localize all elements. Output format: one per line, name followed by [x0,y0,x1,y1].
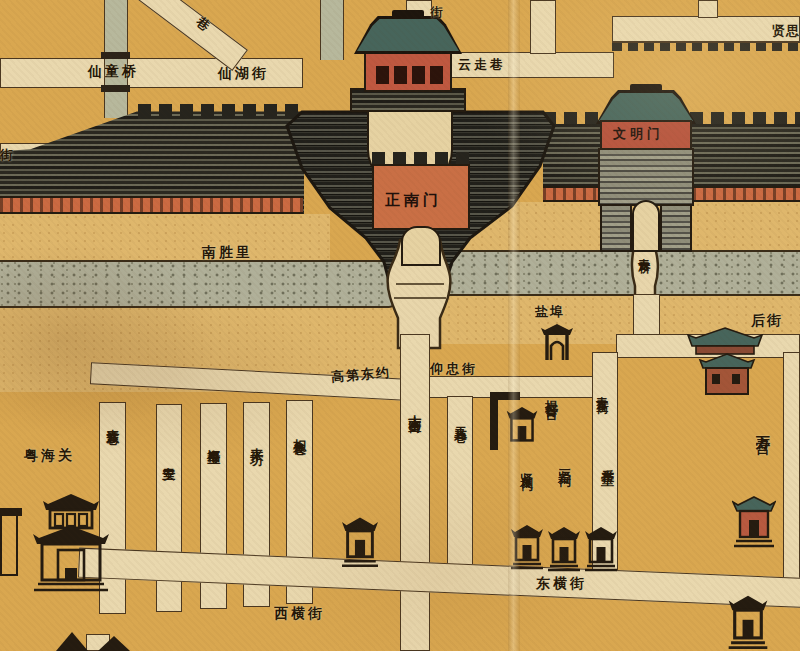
label-fushou-li: 福寿里 [206,438,220,444]
customs-annex-roof [0,508,22,516]
tower-window [430,66,443,84]
label-qingyun-zhijie: 青云直街 [595,386,608,394]
customs-house-building [28,492,114,594]
rooftops-bottom-left [54,626,134,651]
street-danan-zhijie [400,334,430,651]
label-tianma-lane: 天马巷 [453,416,467,422]
wenming-arch [632,200,660,252]
city-wall-left-base [0,196,303,214]
street-tianma-lane [447,396,473,590]
label-subo-lane: 素波巷 [105,418,119,424]
shrine-xianliang [510,522,544,570]
label-wanshou-gong: 万寿宫 [755,424,770,430]
parapet-dashed-line [612,42,800,51]
label-qingyun-bridge: 青云桥 [637,248,650,254]
label-danan-street: 大南直街 [407,404,421,412]
label-tidu-xingtai: 提督行台 [544,390,558,398]
wenming-body [598,148,694,206]
temple-wanshou-small [732,494,776,548]
street-top-vertical-2 [698,0,718,18]
street-hengjie [78,548,800,608]
temple-xiheng [336,514,384,568]
zhengnan-tower-ridge [392,10,424,19]
xiantong-bridge-mark-top [101,52,130,59]
historical-city-map: 正南门 文明门 [0,0,800,651]
label-xiantong-bridge: 仙童桥 [88,64,139,79]
label-yangzhong-street: 仰忠街 [430,362,478,376]
label-fanzuo-tang: 番左堂 [600,458,614,464]
wanshougong-hall-2 [698,352,756,398]
customs-annex-wall [0,514,18,576]
label-dongheng-street: 东横街 [536,576,587,591]
tower-window [394,66,407,84]
label-yuehaiguan: 粤海关 [24,448,75,463]
tower-window [376,66,389,84]
label-left-street-partial: 街 [0,148,16,162]
street-right-edge [783,352,800,592]
label-sanxian-shrine: 三贤祠 [557,458,571,464]
tidu-compound-wall-h [490,392,520,400]
tower-window [412,66,425,84]
label-anli: 安里 [161,456,175,460]
zhengnan-gate-label: 正南门 [385,192,442,209]
wenming-ridge [630,84,662,93]
label-xiansi-partial: 贤思 [772,24,800,38]
tidu-hall [500,404,544,450]
label-yanbu: 盐埠 [535,305,565,319]
label-hou-street: 后街 [751,313,783,328]
wenming-gate-label: 文明门 [613,127,664,141]
zhengnan-gate-arch [401,226,441,266]
wenming-pier-right [660,204,692,252]
xiantong-bridge-mark-bottom [101,85,130,92]
label-yunzou-lane: 云走巷 [458,58,506,72]
shrine-sanxian [547,524,581,572]
label-xianhu-street: 仙湖街 [218,66,269,81]
canal-vertical-mid [320,0,344,60]
building-bottom-right [724,592,772,650]
label-zhiliang-lane: 枳良巷 [292,428,306,434]
label-xianliang-shrine: 贤良祠 [519,462,533,468]
label-xiheng-street: 西横街 [274,606,325,621]
label-taiping-fang: 太平坊 [249,437,263,443]
canal-vertical-west [104,0,128,118]
tidu-compound-wall-v [490,392,498,450]
shrine-fanzuo [584,524,618,572]
street-top-vertical-1 [530,0,556,54]
label-nansheng-li: 南胜里 [202,245,253,260]
yanbu-arch [539,322,575,364]
wenming-pier-left [600,204,632,252]
